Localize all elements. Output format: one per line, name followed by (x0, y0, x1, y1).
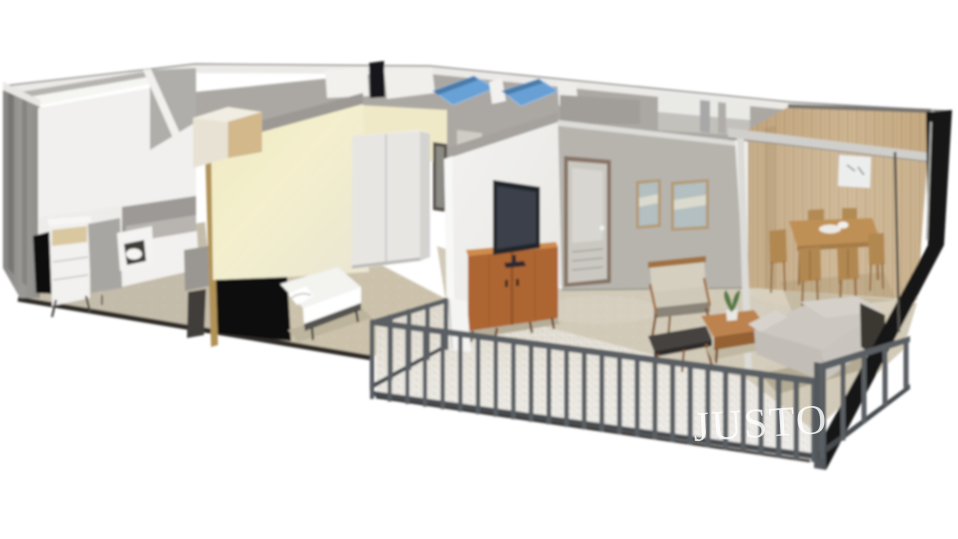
svg-text:JUSTO: JUSTO (692, 397, 830, 451)
